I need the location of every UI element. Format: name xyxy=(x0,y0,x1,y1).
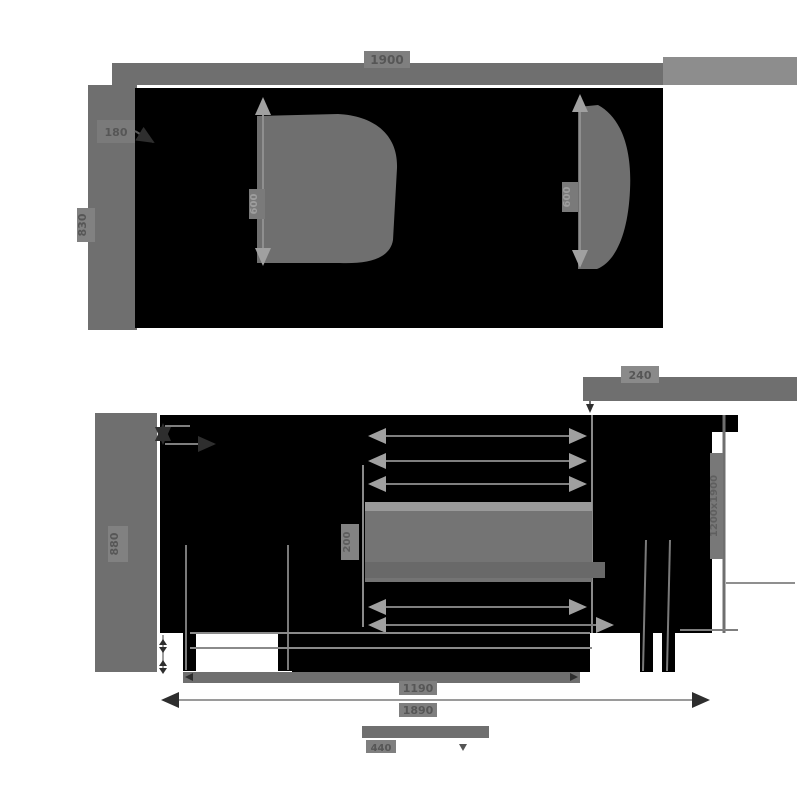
side-mattress-bottom-band xyxy=(365,562,605,578)
front-left-inner-dim-label: 600 xyxy=(249,194,260,215)
side-topright-arrow xyxy=(586,404,594,413)
front-width-dim-band-right xyxy=(663,57,797,85)
side-silhouette-base xyxy=(292,633,590,672)
side-mattress-size-label: 1200x1900 xyxy=(709,475,720,537)
front-height-dim-label: 830 xyxy=(76,213,89,236)
side-mattress-thickness-label: 200 xyxy=(342,532,353,553)
side-bottom-dim3-band xyxy=(362,726,489,738)
side-inner-depth-label: 1190 xyxy=(403,682,434,695)
front-callout-label: 180 xyxy=(105,126,128,139)
side-leg-back xyxy=(183,633,196,671)
side-height-dim-label: 880 xyxy=(108,532,121,555)
side-leg-front-1 xyxy=(640,633,653,672)
sofa-dimension-diagram: 1900 830 600 600 180 880 xyxy=(0,0,800,800)
front-right-inner-dim-label: 600 xyxy=(562,187,573,208)
side-topright-dim-label: 240 xyxy=(629,369,652,382)
side-leg-dim-arrow-2 xyxy=(159,647,167,653)
side-leg-dim-arrow-4 xyxy=(159,668,167,674)
side-mattress-top-band xyxy=(365,502,592,511)
front-view: 1900 830 600 600 180 xyxy=(76,51,797,330)
side-overall-depth-label: 1890 xyxy=(403,704,434,717)
side-view: 880 200 xyxy=(95,366,797,754)
front-width-dim-label: 1900 xyxy=(370,53,403,67)
side-bottom-dim1-band xyxy=(183,672,580,683)
side-leg-dim-arrow-3 xyxy=(159,660,167,666)
side-seat-depth-label: 440 xyxy=(371,743,392,754)
side-leg-mid xyxy=(278,633,292,671)
side-bottom-dim3-arrow-right xyxy=(459,744,467,751)
side-topright-dim-band xyxy=(583,377,797,401)
side-leg-dim-arrow-1 xyxy=(159,639,167,645)
front-cushion-left xyxy=(257,114,397,263)
